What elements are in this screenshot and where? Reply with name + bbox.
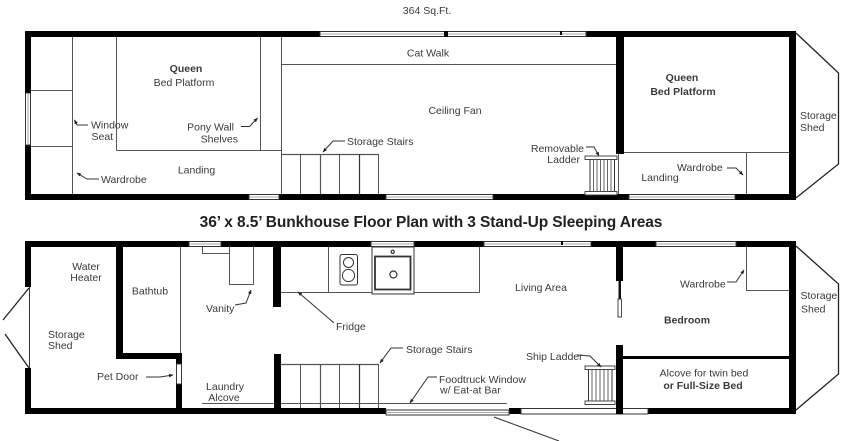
svg-text:Storage Stairs: Storage Stairs bbox=[347, 136, 414, 148]
svg-text:Wardrobe: Wardrobe bbox=[680, 278, 726, 290]
svg-text:Heater: Heater bbox=[70, 272, 102, 284]
svg-text:Fridge: Fridge bbox=[336, 321, 366, 333]
svg-text:Queen: Queen bbox=[170, 63, 203, 75]
svg-text:Wardrobe: Wardrobe bbox=[677, 162, 723, 174]
svg-text:Alcove: Alcove bbox=[208, 392, 240, 404]
svg-text:Bed Platform: Bed Platform bbox=[650, 86, 715, 98]
svg-text:364 Sq.Ft.: 364 Sq.Ft. bbox=[403, 5, 451, 17]
svg-text:36’ x 8.5’ Bunkhouse Floor Pla: 36’ x 8.5’ Bunkhouse Floor Plan with 3 S… bbox=[200, 214, 663, 231]
svg-text:Shed: Shed bbox=[800, 122, 825, 134]
svg-text:Pet Door: Pet Door bbox=[97, 371, 139, 383]
svg-text:Queen: Queen bbox=[666, 72, 699, 84]
svg-text:w/ Eat-at Bar: w/ Eat-at Bar bbox=[439, 385, 501, 397]
svg-text:Storage Stairs: Storage Stairs bbox=[406, 344, 473, 356]
svg-text:Living Area: Living Area bbox=[515, 282, 567, 294]
svg-text:Landing: Landing bbox=[178, 165, 216, 177]
svg-text:Shed: Shed bbox=[48, 340, 73, 352]
svg-text:Wardrobe: Wardrobe bbox=[101, 174, 147, 186]
svg-text:Vanity: Vanity bbox=[206, 303, 235, 315]
svg-text:Bedroom: Bedroom bbox=[664, 315, 710, 327]
svg-text:Shed: Shed bbox=[801, 304, 826, 316]
svg-text:Bed Platform: Bed Platform bbox=[154, 77, 215, 89]
svg-text:or Full-Size Bed: or Full-Size Bed bbox=[663, 380, 742, 392]
svg-text:Ladder: Ladder bbox=[547, 154, 580, 166]
svg-text:Pony Wall: Pony Wall bbox=[187, 122, 234, 134]
svg-text:Shelves: Shelves bbox=[201, 133, 238, 145]
svg-text:Ceiling Fan: Ceiling Fan bbox=[428, 105, 481, 117]
svg-text:Storage: Storage bbox=[801, 290, 838, 302]
svg-text:Cat Walk: Cat Walk bbox=[407, 48, 450, 60]
svg-text:Storage: Storage bbox=[800, 110, 837, 122]
svg-text:Ship Ladder: Ship Ladder bbox=[526, 351, 583, 363]
svg-text:Bathtub: Bathtub bbox=[132, 286, 168, 298]
svg-text:Seat: Seat bbox=[92, 131, 114, 143]
svg-text:Alcove for twin bed: Alcove for twin bed bbox=[660, 368, 749, 380]
svg-text:Landing: Landing bbox=[641, 172, 679, 184]
svg-text:Window: Window bbox=[91, 120, 129, 132]
